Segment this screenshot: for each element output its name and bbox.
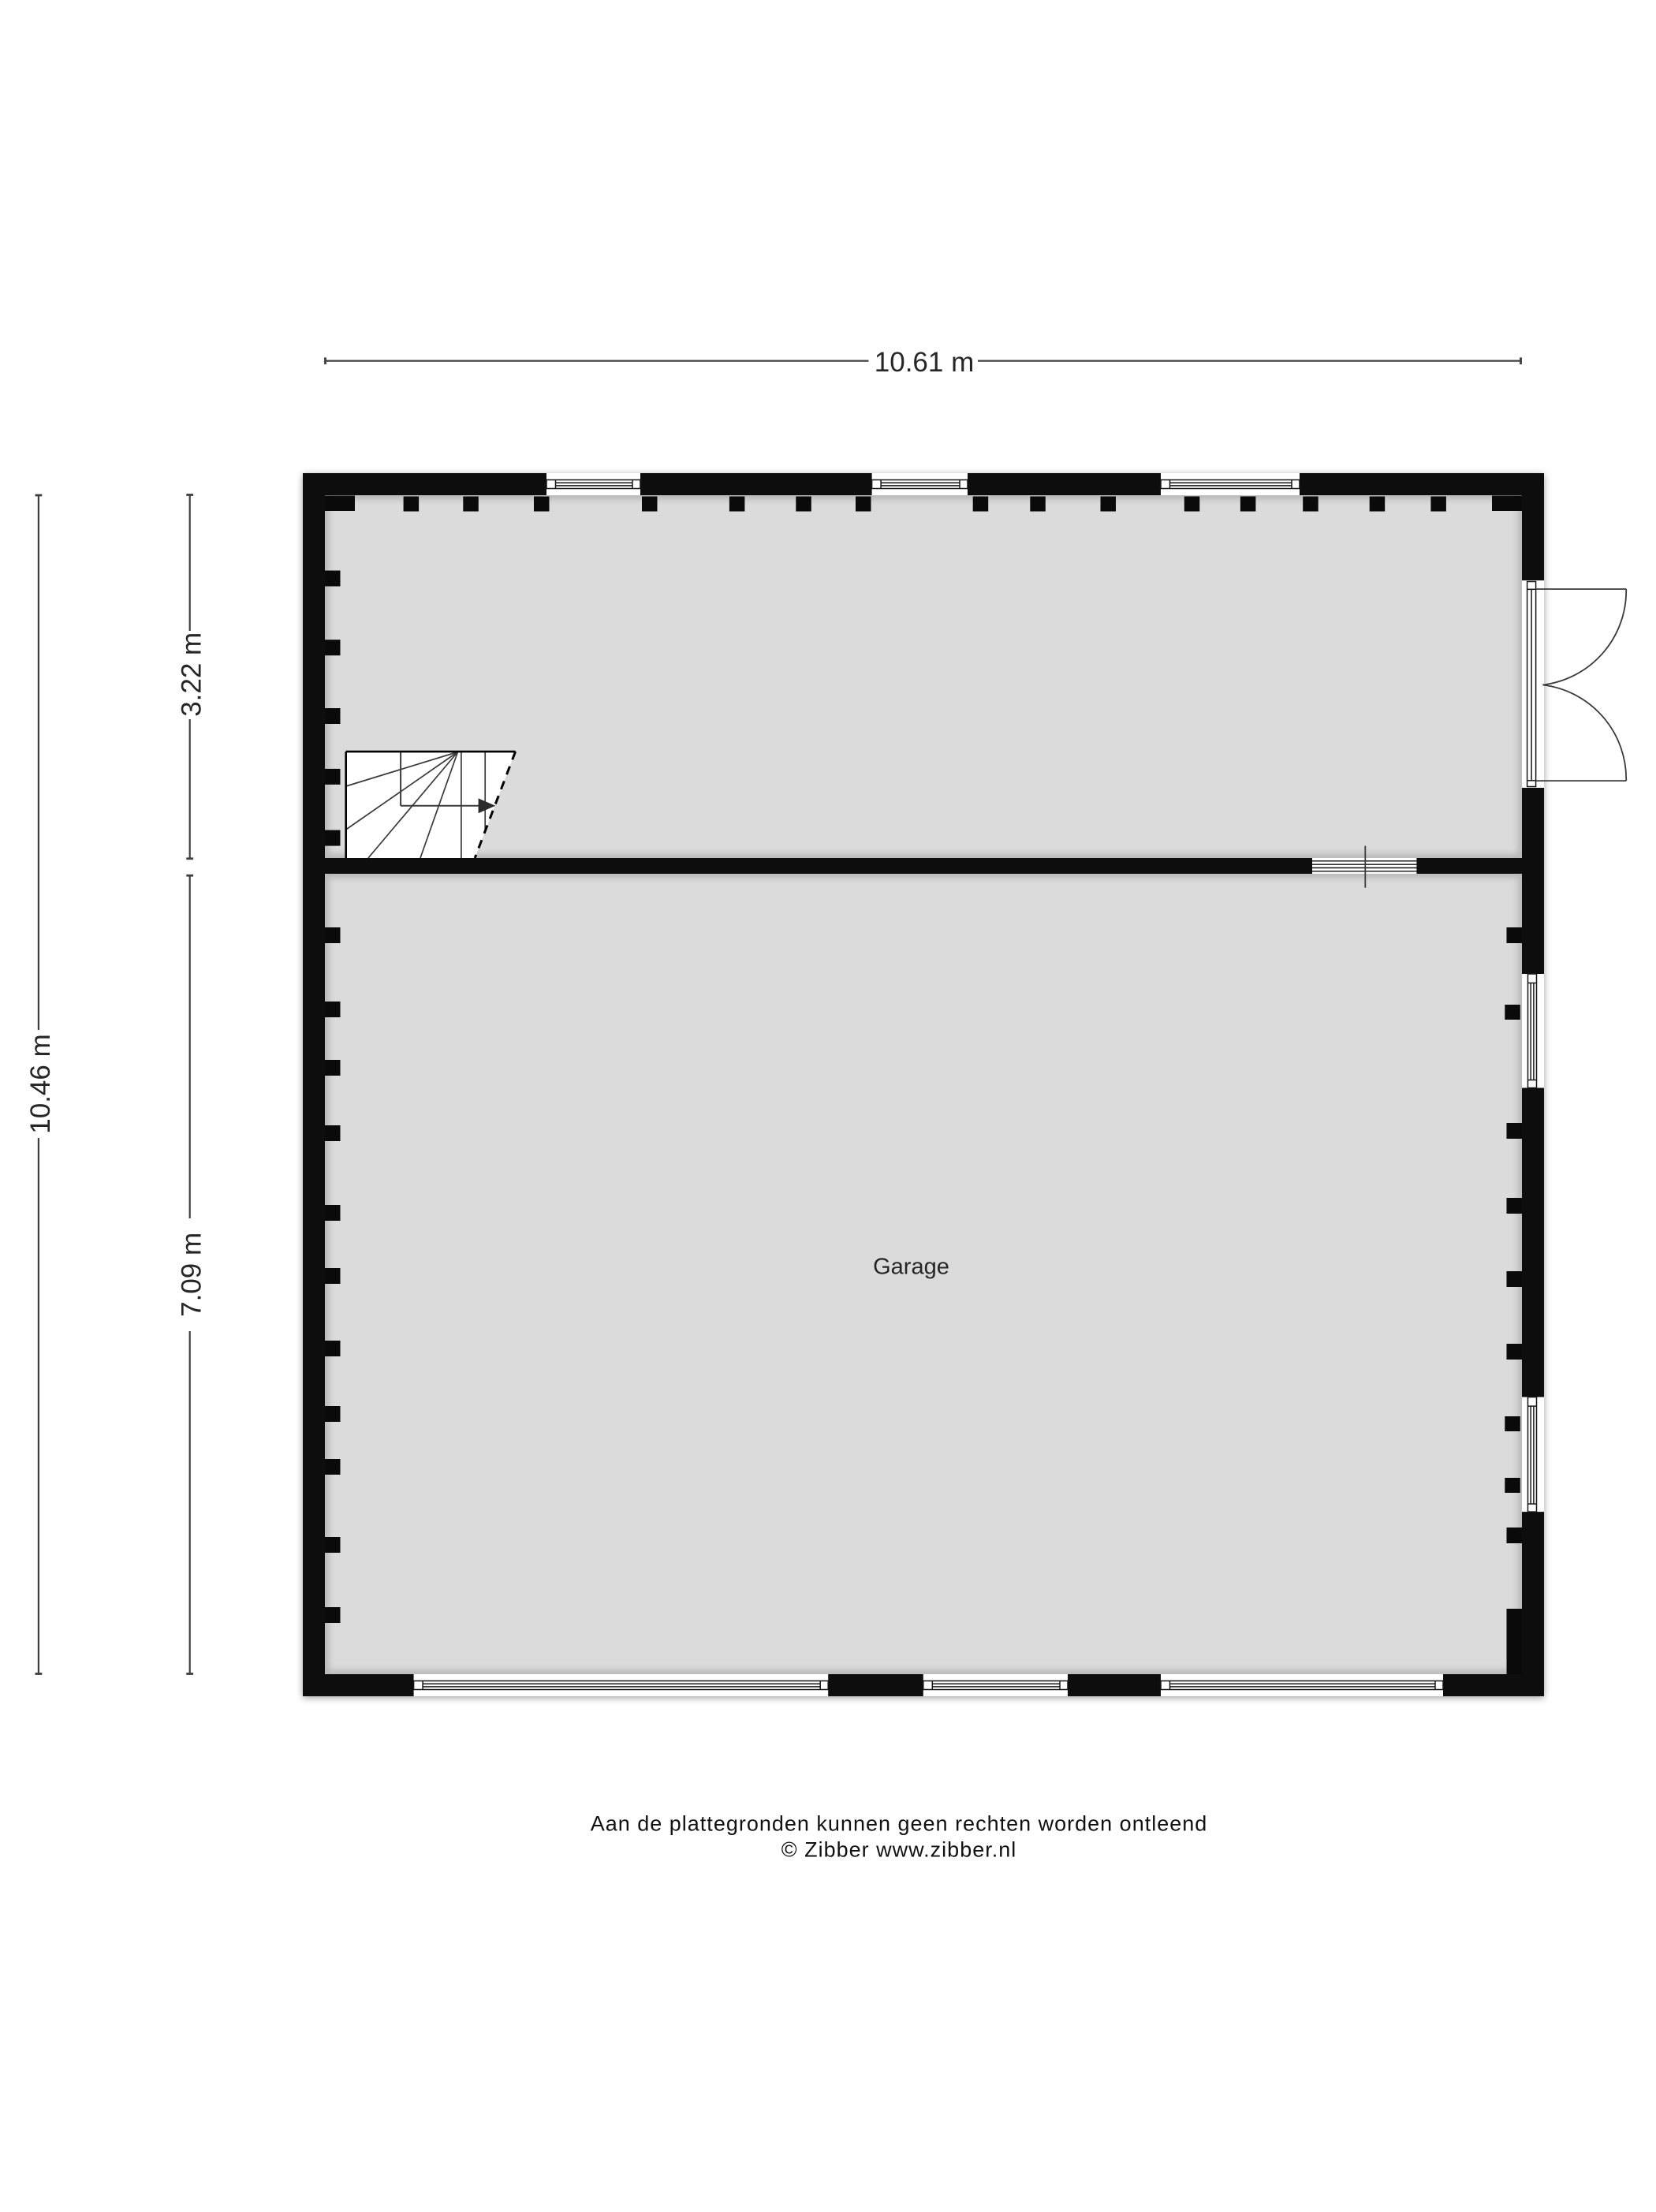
svg-text:Garage: Garage	[873, 1255, 949, 1280]
svg-text:© Zibber www.zibber.nl: © Zibber www.zibber.nl	[781, 1838, 1017, 1862]
svg-text:Aan de plattegronden kunnen ge: Aan de plattegronden kunnen geen rechten…	[591, 1812, 1208, 1836]
svg-text:3.22 m: 3.22 m	[177, 632, 207, 717]
svg-text:7.09 m: 7.09 m	[177, 1233, 207, 1317]
svg-text:10.46 m: 10.46 m	[25, 1034, 56, 1133]
svg-text:10.61 m: 10.61 m	[875, 347, 974, 378]
